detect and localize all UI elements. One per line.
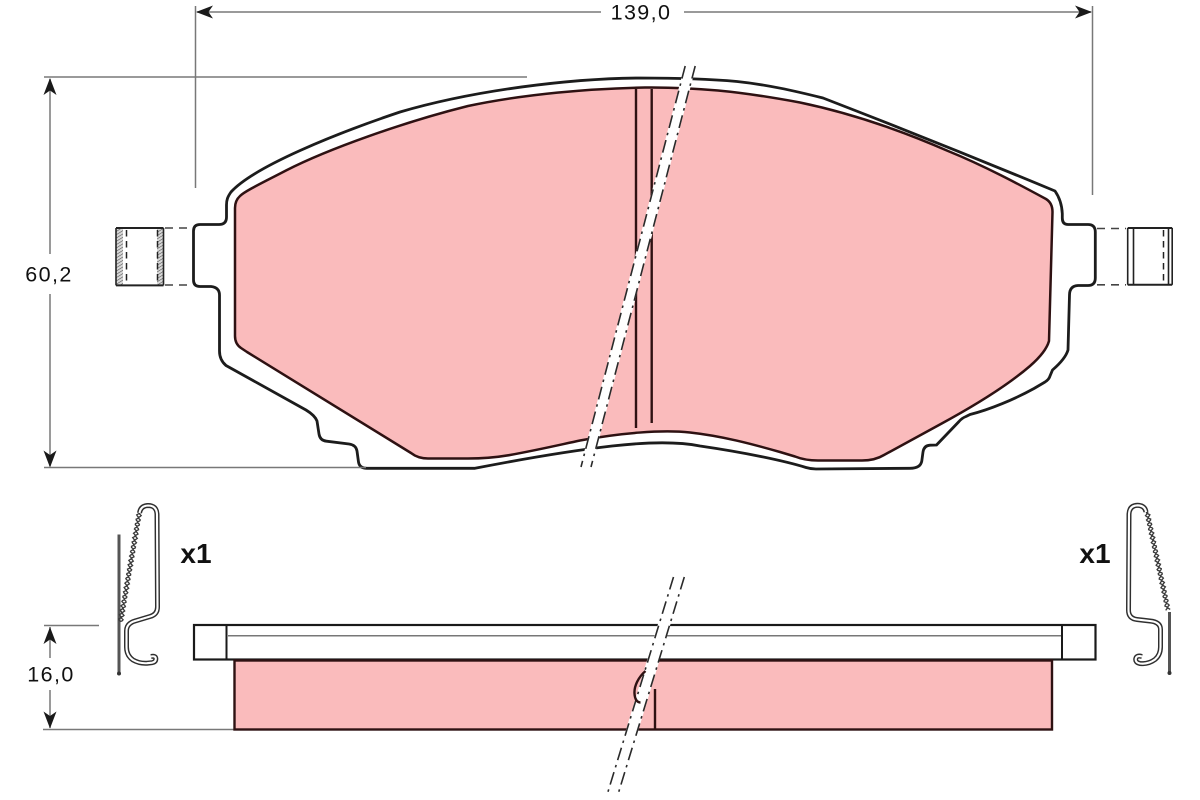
- svg-text:x1: x1: [180, 538, 211, 569]
- svg-text:16,0: 16,0: [27, 663, 74, 687]
- svg-text:60,2: 60,2: [25, 263, 72, 287]
- svg-text:139,0: 139,0: [611, 1, 672, 25]
- svg-text:x1: x1: [1079, 538, 1110, 569]
